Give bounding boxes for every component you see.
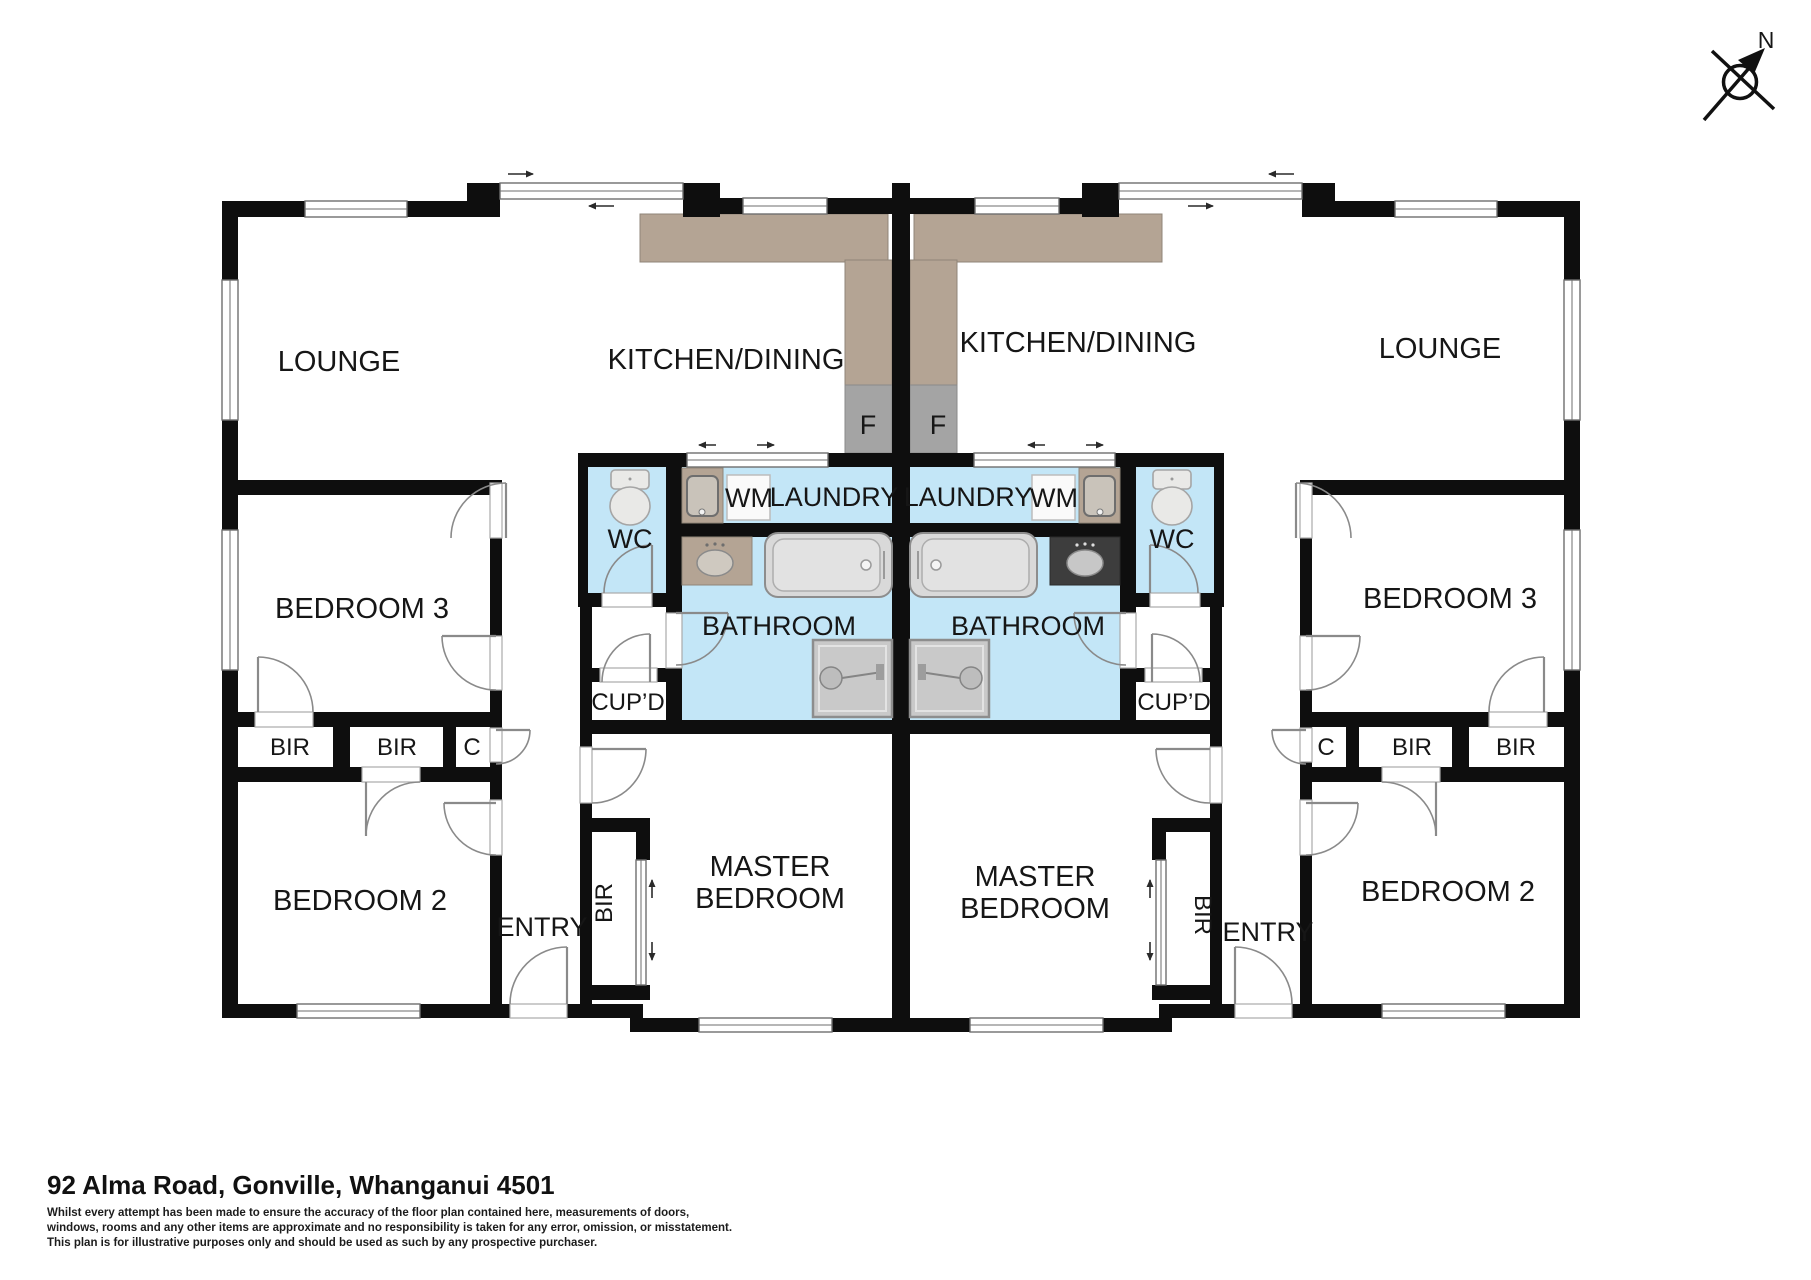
label-bir-master: BIR	[591, 883, 618, 923]
label-bir-1: BIR	[270, 734, 310, 761]
floor-plan-page: LOUNGE KITCHEN/DINING WC LAUNDRY WM F BA…	[0, 0, 1811, 1280]
room-label-lounge: LOUNGE	[1379, 333, 1501, 365]
label-bir-2: BIR	[1496, 734, 1536, 761]
room-label-bedroom3: BEDROOM 3	[1363, 583, 1537, 615]
room-label-laundry: LAUNDRY	[904, 482, 1033, 512]
vanity-right	[1050, 537, 1120, 585]
vanity-left	[682, 537, 752, 585]
room-label-master-2: BEDROOM	[695, 883, 845, 915]
room-label-cupboard: CUP’D	[1137, 689, 1210, 716]
room-label-master-2: BEDROOM	[960, 893, 1110, 925]
room-label-entry: ENTRY	[1222, 917, 1313, 947]
room-label-master-1: MASTER	[975, 861, 1096, 893]
room-label-bedroom3: BEDROOM 3	[275, 593, 449, 625]
room-label-bathroom: BATHROOM	[951, 611, 1105, 641]
room-label-entry: ENTRY	[496, 912, 587, 942]
label-bir-master: BIR	[1189, 895, 1216, 935]
room-label-kitchen-dining: KITCHEN/DINING	[608, 344, 845, 376]
label-fridge: F	[860, 410, 877, 440]
room-label-kitchen-dining: KITCHEN/DINING	[960, 327, 1197, 359]
room-label-laundry: LAUNDRY	[770, 482, 899, 512]
room-label-bedroom2: BEDROOM 2	[273, 885, 447, 917]
room-label-cupboard: CUP’D	[591, 689, 664, 716]
room-label-lounge: LOUNGE	[278, 346, 400, 378]
disclaimer-line-2: windows, rooms and any other items are a…	[47, 1221, 732, 1236]
room-label-bathroom: BATHROOM	[702, 611, 856, 641]
room-label-bedroom2: BEDROOM 2	[1361, 876, 1535, 908]
compass-icon: N	[1704, 27, 1774, 120]
label-washing-machine: WM	[725, 483, 773, 513]
compass-north-label: N	[1758, 27, 1775, 53]
label-cupboard-c: C	[463, 734, 480, 761]
label-fridge: F	[930, 410, 947, 440]
disclaimer-line-1: Whilst every attempt has been made to en…	[47, 1206, 732, 1221]
label-bir-1: BIR	[1392, 734, 1432, 761]
disclaimer-text: Whilst every attempt has been made to en…	[47, 1206, 732, 1252]
label-washing-machine: WM	[1030, 483, 1078, 513]
disclaimer-line-3: This plan is for illustrative purposes o…	[47, 1236, 732, 1251]
label-bir-2: BIR	[377, 734, 417, 761]
label-cupboard-c: C	[1317, 734, 1334, 761]
floor-plan: LOUNGE KITCHEN/DINING WC LAUNDRY WM F BA…	[0, 0, 1811, 1280]
room-label-wc: WC	[1150, 524, 1195, 554]
room-label-wc: WC	[608, 524, 653, 554]
room-label-master-1: MASTER	[710, 851, 831, 883]
address-title: 92 Alma Road, Gonville, Whanganui 4501	[47, 1170, 555, 1201]
